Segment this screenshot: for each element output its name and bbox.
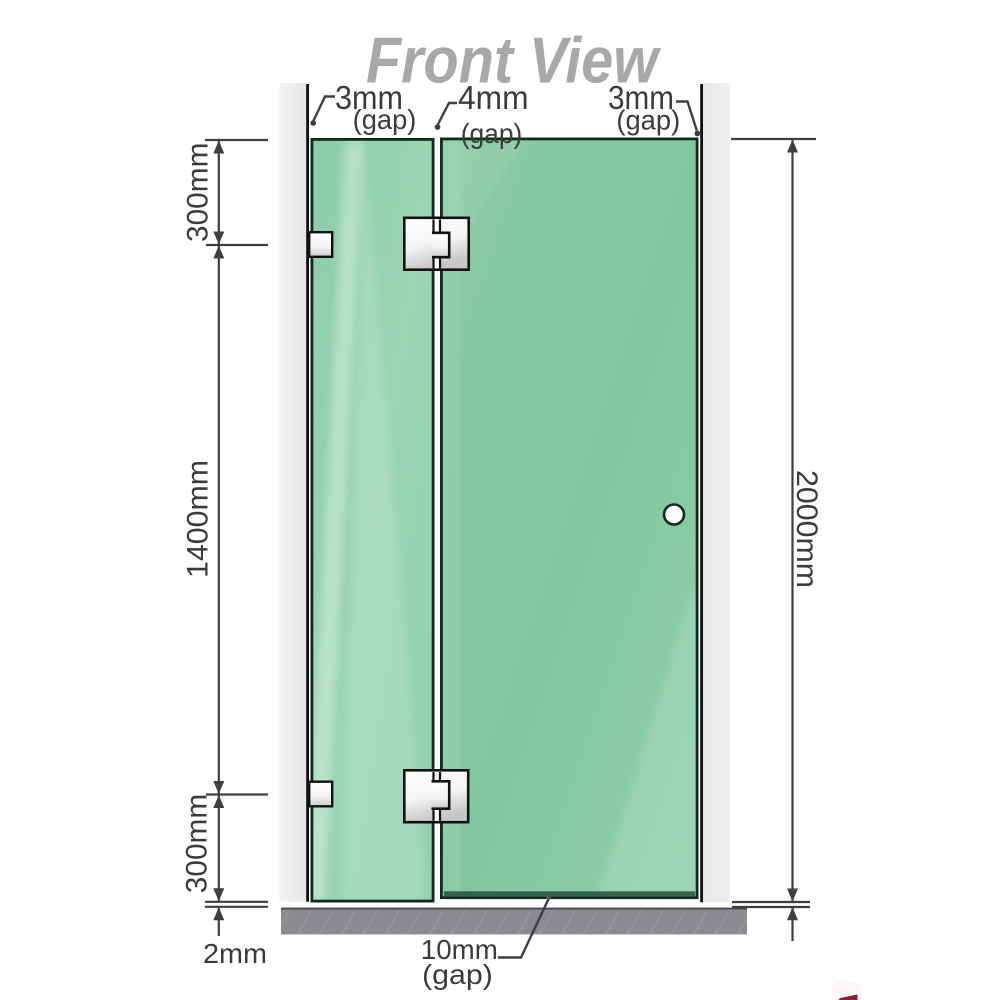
svg-text:4mm: 4mm [458, 79, 529, 116]
svg-text:300mm: 300mm [182, 143, 215, 242]
svg-text:(gap): (gap) [461, 118, 523, 149]
svg-text:1400mm: 1400mm [182, 460, 215, 578]
svg-text:(gap): (gap) [616, 105, 680, 136]
svg-text:300mm: 300mm [181, 794, 214, 893]
svg-text:2mm: 2mm [203, 938, 267, 969]
svg-text:(gap): (gap) [422, 959, 493, 990]
svg-text:(gap): (gap) [353, 104, 417, 135]
svg-text:2000mm: 2000mm [790, 470, 823, 588]
